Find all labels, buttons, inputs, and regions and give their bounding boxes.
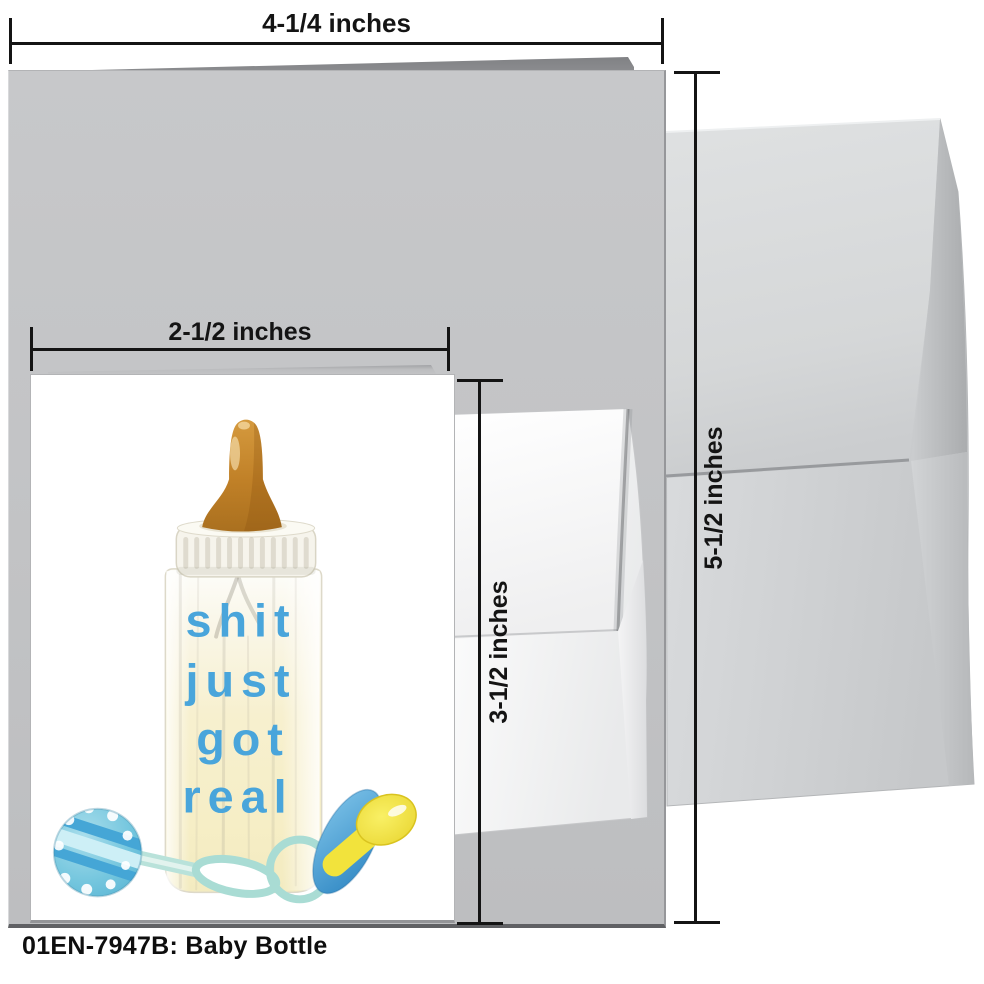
dimension-line — [9, 42, 664, 45]
dimension-line — [694, 71, 697, 924]
message-line-3: got — [196, 713, 290, 765]
message-line-2: just — [184, 654, 296, 706]
dimension-tick — [447, 327, 450, 371]
baby-bottle-artwork: shit just got real — [31, 375, 454, 920]
bottle-nipple — [199, 420, 287, 533]
dimension-small-card-width: 2-1/2 inches — [30, 318, 450, 372]
dimension-large-card-height: 5-1/2 inches — [674, 71, 720, 924]
small-card-front: shit just got real — [30, 374, 455, 923]
product-caption: 01EN-7947B: Baby Bottle — [22, 932, 328, 961]
dimension-tick — [457, 922, 503, 925]
dimension-tick — [674, 71, 720, 74]
dimension-tick — [457, 379, 503, 382]
dimension-tick — [30, 327, 33, 371]
dimension-small-card-height-label: 3-1/2 inches — [485, 502, 513, 802]
dimension-line — [30, 348, 450, 351]
dimension-tick — [674, 921, 720, 924]
dimension-large-card-width-label: 4-1/4 inches — [9, 8, 664, 39]
message-line-1: shit — [185, 595, 296, 647]
dimension-small-card-width-label: 2-1/2 inches — [30, 318, 450, 347]
dimension-tick — [661, 18, 664, 64]
message-line-4: real — [182, 771, 293, 823]
dimension-small-card-height: 3-1/2 inches — [457, 379, 503, 925]
dimension-large-card-height-label: 5-1/2 inches — [700, 348, 728, 648]
dimension-large-card-width: 4-1/4 inches — [9, 8, 664, 64]
dimension-line — [478, 379, 481, 925]
greeting-card-product-mockup: shit just got real — [0, 0, 984, 984]
dimension-tick — [9, 18, 12, 64]
